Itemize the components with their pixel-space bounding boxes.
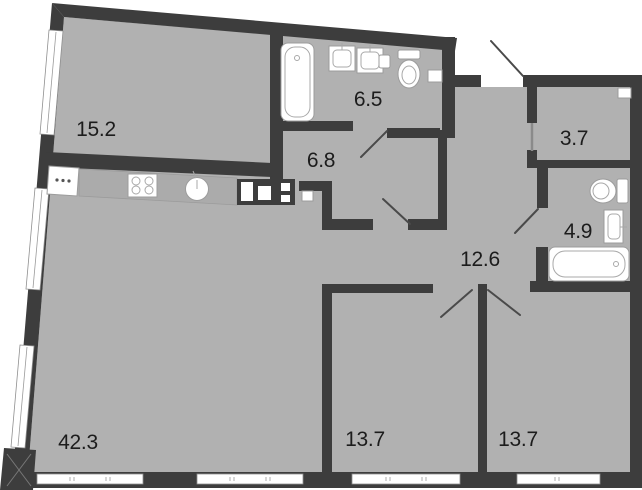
wall-bath-main-bottom (283, 121, 353, 131)
wall-living-top-right (408, 219, 447, 230)
window-bottom-1 (37, 474, 143, 484)
washing-machine-icon (47, 166, 79, 196)
room-label-bedroom-right: 13.7 (498, 428, 538, 451)
sink-icon (329, 43, 355, 71)
bathtub-horizontal-icon (549, 247, 629, 281)
room-label-wardrobe: 3.7 (560, 127, 588, 150)
room-label-upper-left: 15.2 (76, 118, 116, 141)
vent-shaft-icon (618, 88, 631, 98)
wall-bath2-left-upper (537, 160, 548, 208)
kitchen-cabinets-icon (237, 179, 295, 205)
stove-icon (128, 174, 157, 197)
floor-plan-page: 42.3 15.2 6.5 6.8 3.7 4.9 12.6 13.7 13.7 (0, 0, 642, 490)
window-bottom-4 (517, 474, 600, 484)
wall-hall-right (438, 130, 447, 228)
floor-plan: 42.3 15.2 6.5 6.8 3.7 4.9 12.6 13.7 13.7 (0, 0, 642, 490)
room-label-bedroom-left: 13.7 (345, 428, 385, 451)
window-bottom-2 (197, 474, 303, 484)
wall-top-right-entry (523, 75, 642, 87)
water-heater-icon (379, 55, 390, 68)
wall-between-bedrooms (478, 284, 487, 472)
wall-hall-top (387, 128, 440, 138)
window-bottom-3 (352, 474, 460, 484)
room-label-living-kitchen: 42.3 (58, 431, 98, 454)
wall-bedrooms-top (327, 284, 433, 293)
vent-shaft-icon (428, 70, 442, 82)
wall-wardrobe-left-upper (527, 87, 537, 123)
room-label-corridor: 12.6 (460, 248, 500, 271)
toilet-icon (590, 179, 628, 203)
wall-bedroom-left-side (322, 284, 332, 472)
toilet-icon (398, 50, 420, 88)
room-label-bathroom-main: 6.5 (354, 88, 382, 111)
wall-bath2-bottom (530, 281, 642, 292)
wall-bath-main-right (442, 37, 455, 138)
bathtub-vertical-icon (281, 43, 314, 121)
room-label-bathroom-second: 4.9 (564, 220, 592, 243)
room-label-hallway-small: 6.8 (307, 149, 335, 172)
